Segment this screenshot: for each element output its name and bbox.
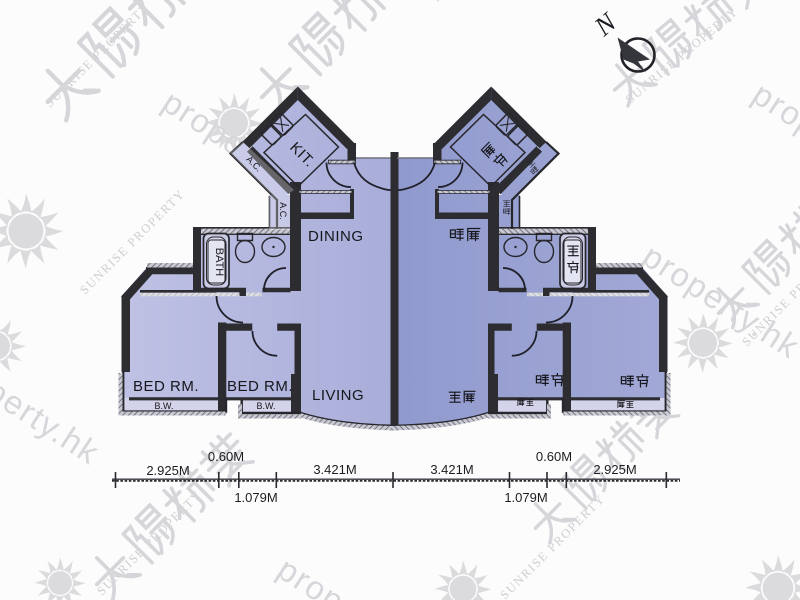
svg-text:DINING: DINING bbox=[308, 228, 364, 245]
svg-text:0.60M: 0.60M bbox=[536, 449, 572, 464]
svg-text:1.079M: 1.079M bbox=[504, 490, 547, 505]
svg-text:A.C.: A.C. bbox=[278, 202, 288, 220]
svg-text:0.60M: 0.60M bbox=[208, 449, 244, 464]
svg-text:BED RM.: BED RM. bbox=[133, 378, 199, 395]
svg-text:1.079M: 1.079M bbox=[234, 490, 277, 505]
svg-text:B.W.: B.W. bbox=[256, 401, 275, 411]
svg-text:3.421M: 3.421M bbox=[430, 462, 473, 477]
svg-text:3.421M: 3.421M bbox=[313, 462, 356, 477]
svg-text:2.925M: 2.925M bbox=[593, 462, 636, 477]
svg-text:B.W.: B.W. bbox=[154, 401, 173, 411]
svg-text:LIVING: LIVING bbox=[312, 387, 364, 404]
svg-text:BATH: BATH bbox=[213, 248, 225, 277]
svg-text:2.925M: 2.925M bbox=[146, 463, 189, 478]
svg-text:BED RM.: BED RM. bbox=[227, 378, 293, 395]
